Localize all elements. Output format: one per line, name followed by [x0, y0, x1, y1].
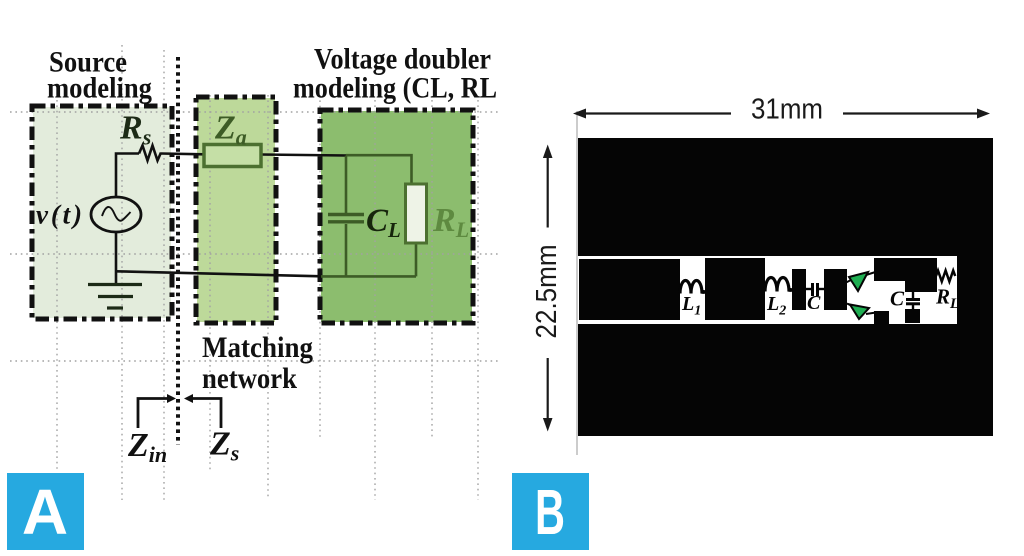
svg-text:Zs: Zs — [209, 426, 239, 466]
svg-text:22.5mm: 22.5mm — [531, 245, 563, 339]
svg-text:Matching: Matching — [202, 331, 313, 364]
svg-text:31mm: 31mm — [751, 94, 823, 126]
svg-text:network: network — [202, 362, 297, 395]
svg-text:C: C — [890, 287, 905, 311]
svg-text:C: C — [807, 292, 821, 314]
svg-text:A: A — [22, 476, 68, 548]
svg-text:Zin: Zin — [127, 427, 167, 467]
svg-text:v(t): v(t) — [36, 200, 82, 230]
svg-text:modeling: modeling — [47, 72, 152, 105]
svg-text:B: B — [535, 476, 565, 548]
svg-text:modeling (CL, RL: modeling (CL, RL — [293, 72, 497, 105]
